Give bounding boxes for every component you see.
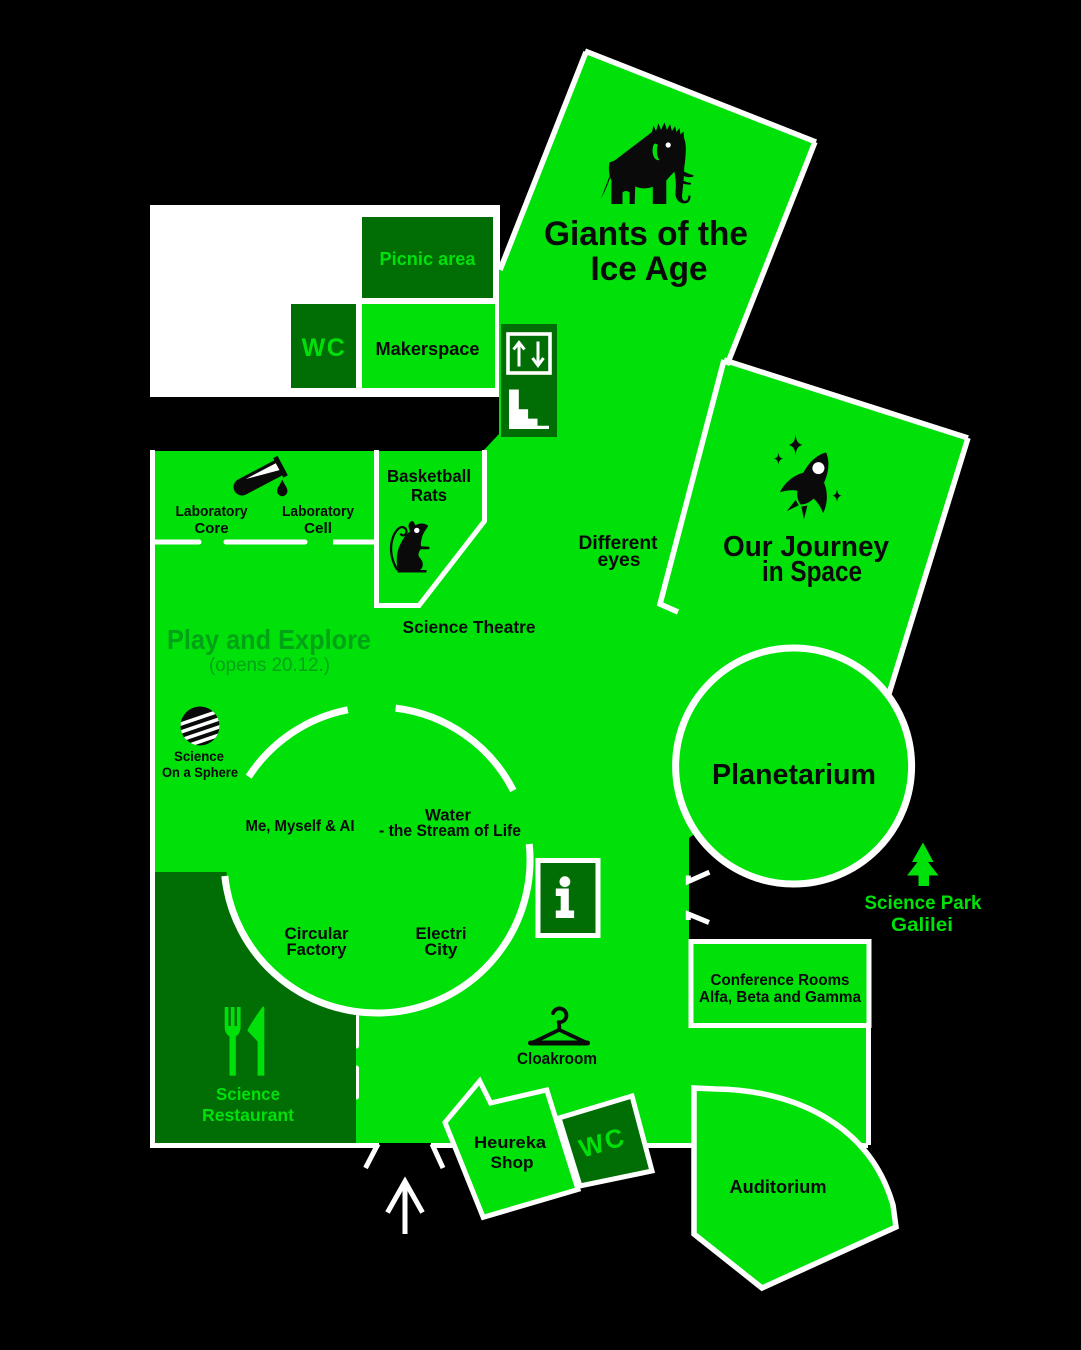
svg-text:in Space: in Space [762, 556, 862, 588]
svg-text:Makerspace: Makerspace [376, 339, 480, 359]
svg-text:Rats: Rats [411, 485, 447, 505]
svg-text:Me, Myself & AI: Me, Myself & AI [246, 818, 355, 835]
svg-text:Science: Science [216, 1084, 280, 1104]
svg-text:Science Park: Science Park [865, 893, 982, 914]
svg-text:Picnic area: Picnic area [380, 249, 477, 269]
svg-text:Cell: Cell [304, 521, 332, 537]
svg-text:Giants of the: Giants of the [544, 215, 748, 253]
svg-text:Core: Core [195, 521, 229, 537]
svg-text:Alfa, Beta and Gamma: Alfa, Beta and Gamma [699, 989, 861, 1006]
svg-text:Science Theatre: Science Theatre [403, 617, 536, 637]
svg-text:Restaurant: Restaurant [202, 1105, 294, 1125]
svg-text:WC: WC [302, 334, 347, 362]
svg-text:Factory: Factory [287, 941, 348, 959]
svg-text:eyes: eyes [598, 550, 641, 571]
svg-text:(opens 20.12.): (opens 20.12.) [209, 655, 330, 676]
svg-text:Play and Explore: Play and Explore [167, 624, 371, 655]
svg-text:- the Stream of Life: - the Stream of Life [379, 822, 521, 840]
svg-text:Ice Age: Ice Age [591, 250, 708, 288]
svg-text:Basketball: Basketball [387, 466, 471, 486]
svg-text:Science: Science [174, 749, 224, 764]
svg-text:Shop: Shop [491, 1153, 534, 1172]
svg-text:Galilei: Galilei [891, 915, 953, 936]
svg-text:Conference Rooms: Conference Rooms [711, 972, 850, 989]
svg-text:Laboratory: Laboratory [282, 504, 354, 520]
svg-text:Planetarium: Planetarium [712, 759, 876, 791]
svg-text:Laboratory: Laboratory [176, 504, 248, 520]
svg-text:On a Sphere: On a Sphere [162, 765, 238, 780]
svg-text:Auditorium: Auditorium [730, 1177, 827, 1197]
svg-text:City: City [425, 941, 459, 959]
svg-text:Heureka: Heureka [474, 1133, 547, 1152]
svg-text:Cloakroom: Cloakroom [517, 1050, 597, 1068]
